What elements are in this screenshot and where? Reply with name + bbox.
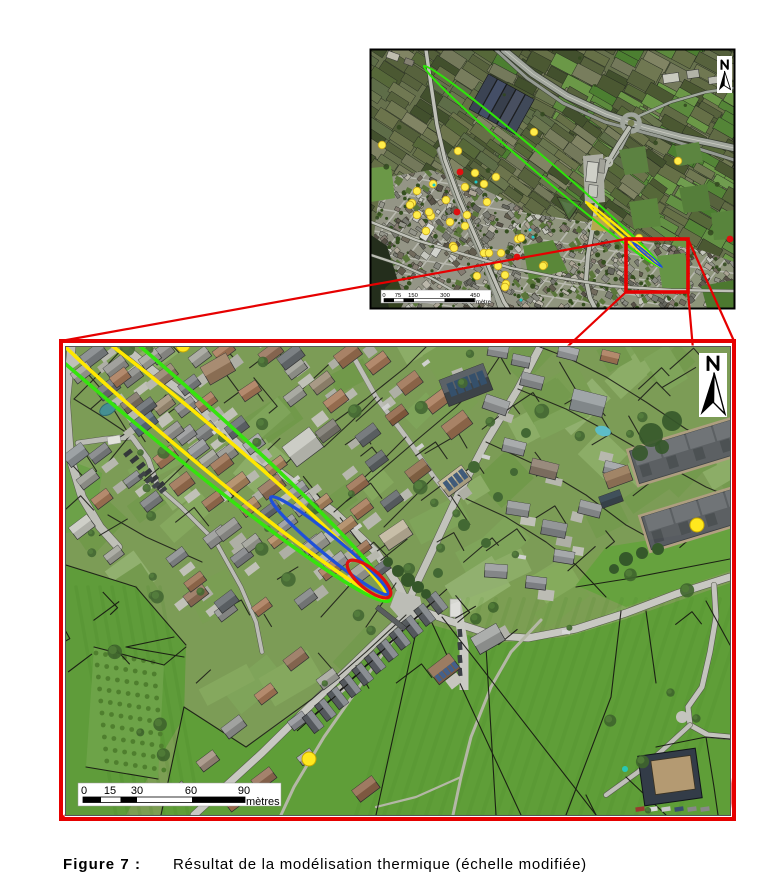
svg-text:15: 15: [104, 785, 116, 797]
svg-text:60: 60: [185, 785, 197, 797]
svg-text:30: 30: [131, 785, 143, 797]
svg-text:300: 300: [440, 293, 450, 299]
svg-text:mètre: mètre: [476, 300, 491, 306]
svg-text:mètres: mètres: [246, 796, 280, 808]
svg-text:450: 450: [470, 293, 480, 299]
svg-text:75: 75: [395, 293, 401, 299]
svg-text:0: 0: [382, 293, 385, 299]
svg-text:150: 150: [408, 293, 418, 299]
svg-text:0: 0: [81, 785, 87, 797]
